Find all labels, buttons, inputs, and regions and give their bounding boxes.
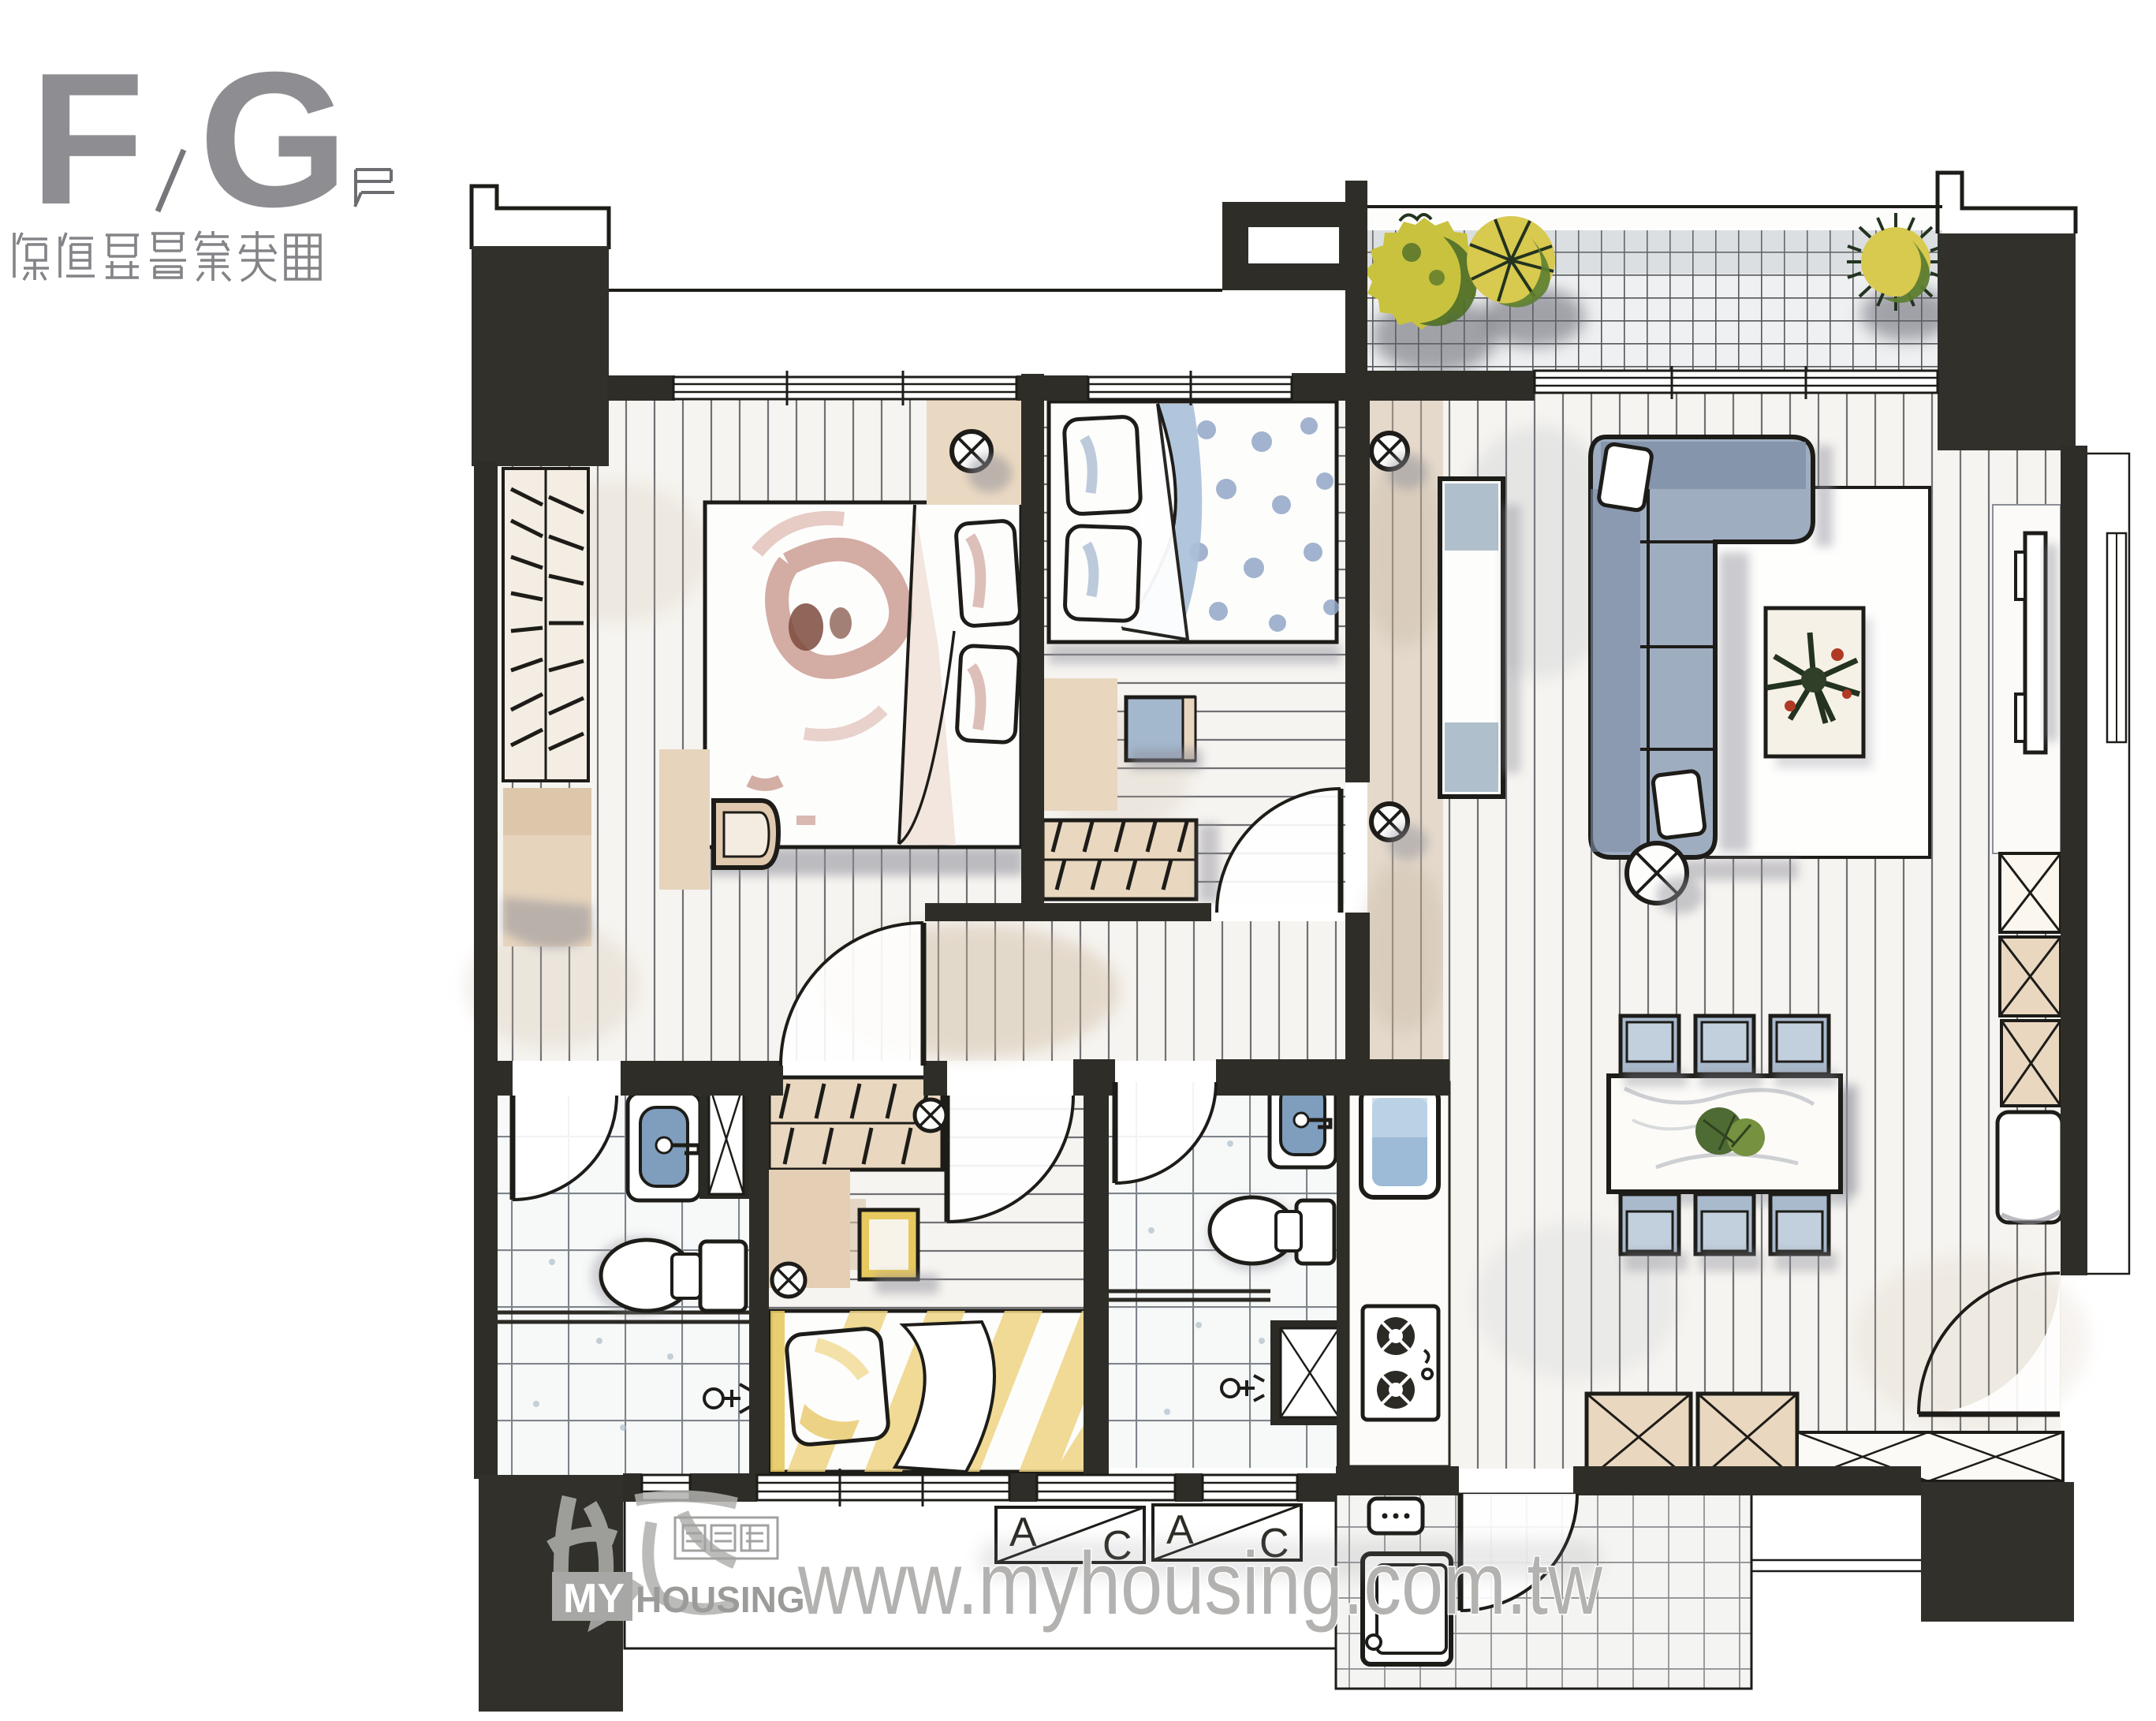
svg-text:G: G — [199, 32, 349, 247]
svg-text:F: F — [30, 35, 144, 244]
svg-text:www.myhousing.com.tw: www.myhousing.com.tw — [797, 1534, 1603, 1633]
svg-text:MY: MY — [563, 1576, 625, 1622]
svg-text:HOUSING: HOUSING — [636, 1579, 805, 1620]
